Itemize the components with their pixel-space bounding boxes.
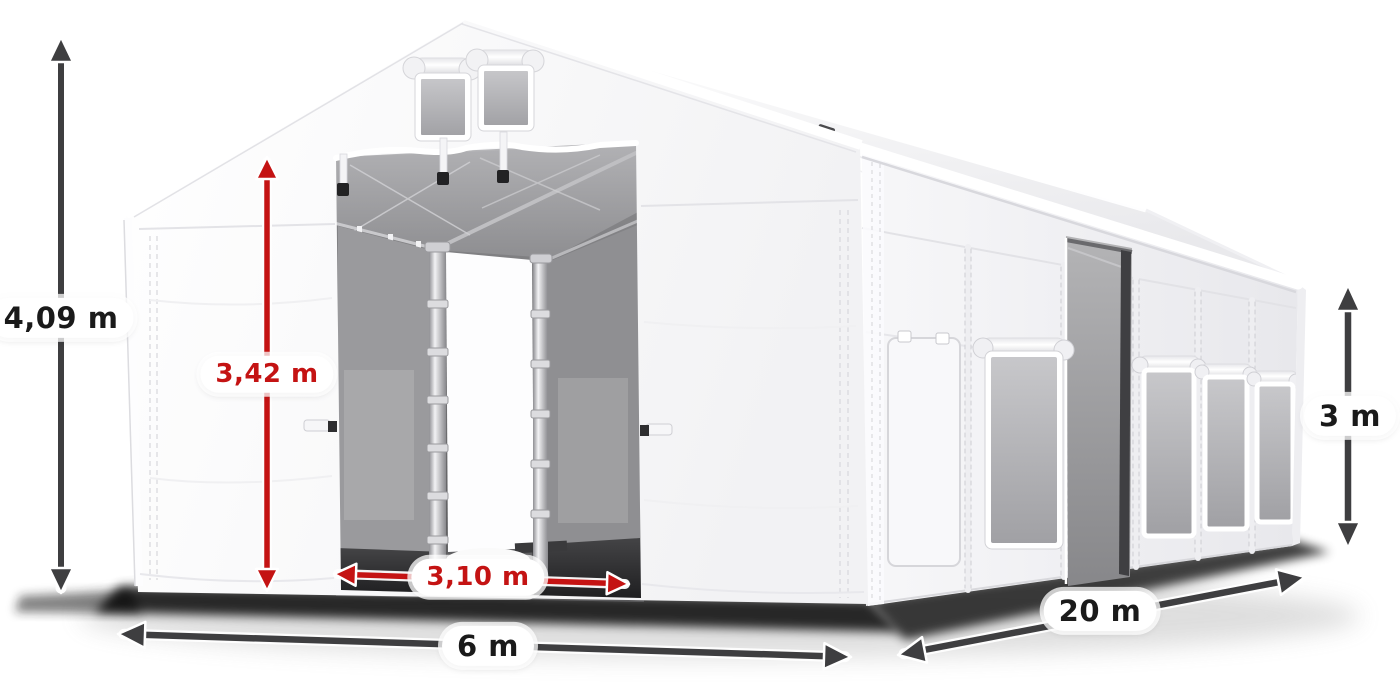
dimension-label-side-length: 20 m (1044, 591, 1157, 631)
dimension-label-front-width: 6 m (442, 626, 534, 666)
door-handle-right (640, 424, 672, 436)
side-window-3 (1195, 364, 1257, 529)
doorway-interior (332, 136, 644, 602)
door-handle-left (304, 420, 337, 432)
gable-vent-left (403, 57, 481, 141)
side-door-flap (888, 331, 960, 566)
side-opening-pole (1119, 250, 1131, 576)
tent-dimension-diagram: 4,09 m 3,42 m 3,10 m 6 m 20 m 3 m (0, 0, 1400, 700)
side-window-2 (1132, 356, 1206, 536)
dimension-label-total-height: 4,09 m (0, 298, 133, 338)
dimension-label-door-width: 3,10 m (411, 559, 544, 596)
tent-illustration (0, 0, 1400, 700)
side-window-1 (973, 338, 1074, 549)
doorway-see-through (446, 252, 534, 552)
gable-vent-right (466, 49, 544, 131)
side-opening (1066, 236, 1132, 586)
dimension-label-wall-height: 3 m (1304, 396, 1396, 436)
dimension-label-clearance-height: 3,42 m (200, 356, 333, 393)
